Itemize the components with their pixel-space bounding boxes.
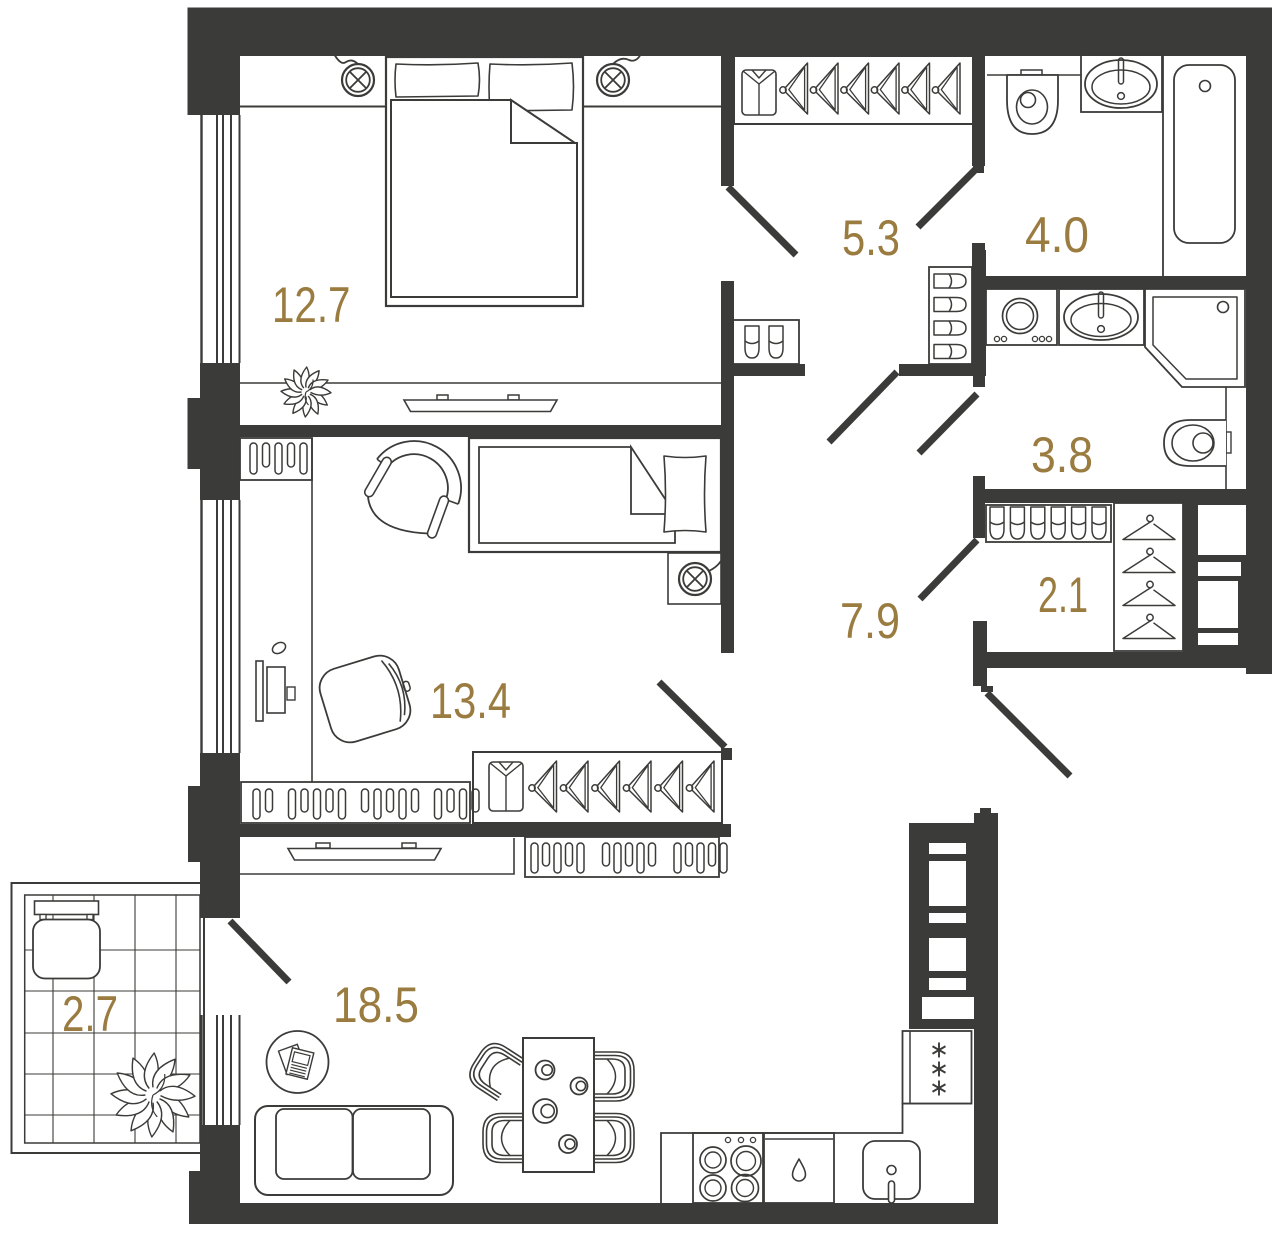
svg-text:2.1: 2.1 — [1038, 567, 1088, 623]
svg-text:18.5: 18.5 — [333, 977, 419, 1033]
svg-text:2.7: 2.7 — [62, 986, 118, 1042]
svg-text:4.0: 4.0 — [1025, 207, 1089, 263]
svg-text:3.8: 3.8 — [1031, 427, 1093, 483]
svg-text:5.3: 5.3 — [842, 210, 900, 266]
svg-text:12.7: 12.7 — [272, 277, 351, 333]
svg-text:13.4: 13.4 — [430, 673, 511, 729]
svg-text:7.9: 7.9 — [840, 593, 900, 649]
